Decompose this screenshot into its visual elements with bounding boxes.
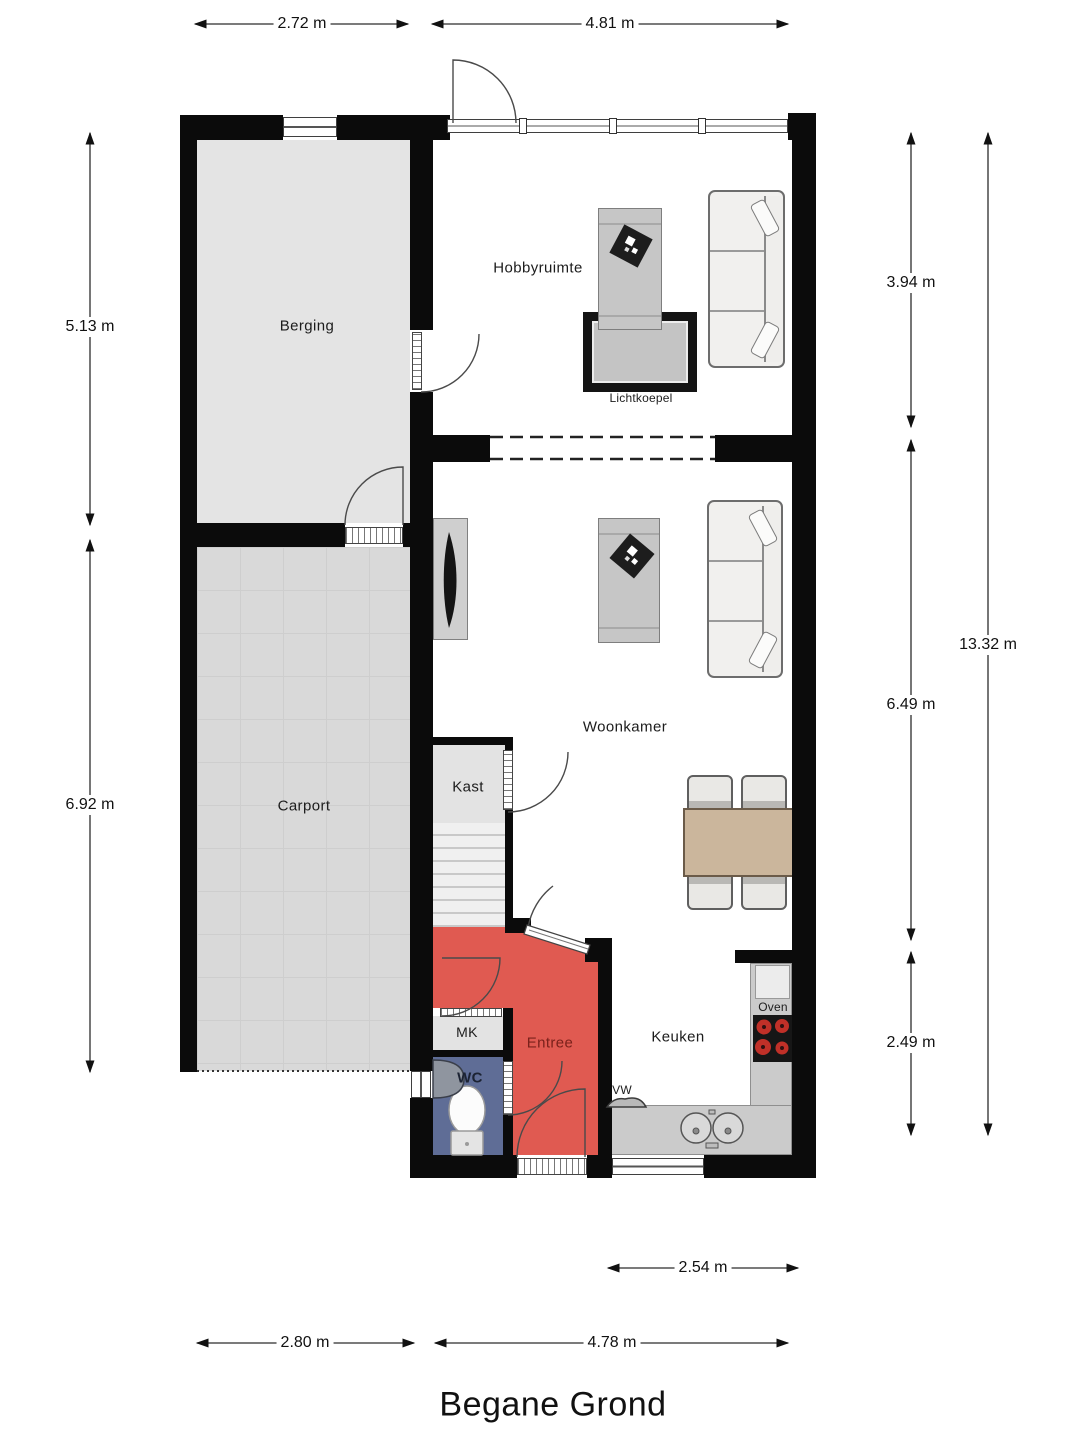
dim-top-left: 2.72 m (274, 14, 331, 34)
entree-living-door-leaf (524, 925, 590, 954)
dim-bottom-kitchen: 2.54 m (675, 1258, 732, 1278)
label-oven: Oven (758, 1000, 787, 1014)
room-label-woonkamer: Woonkamer (583, 719, 667, 736)
room-label-mk: MK (456, 1024, 478, 1040)
kitchen-sink (681, 1110, 743, 1148)
dishwasher-bump (607, 1098, 646, 1107)
dim-right-middle: 6.49 m (883, 695, 940, 715)
dim-bottom-right: 4.78 m (584, 1333, 641, 1353)
tv (444, 532, 457, 628)
door-swings (345, 60, 585, 1157)
toilet (449, 1086, 485, 1155)
decor-object (609, 533, 654, 578)
dim-top-right: 4.81 m (582, 14, 639, 34)
entree-living-door-arc (528, 886, 553, 928)
floor-plan: 2.72 m 4.81 m 5.13 m 6.92 m 3.94 m 6.49 … (0, 0, 1080, 1440)
room-label-entree: Entree (527, 1035, 574, 1052)
hobby-entry-door (453, 60, 516, 123)
page-title: Begane Grond (439, 1386, 666, 1425)
dim-left-lower: 6.92 m (62, 795, 119, 815)
open-passage (490, 437, 715, 459)
decor-object (609, 224, 652, 267)
berging-hobby-door-arc (421, 334, 479, 392)
room-label-lichtkoepel: Lichtkoepel (610, 391, 673, 405)
dimension-lines (90, 24, 988, 1343)
room-label-kast: Kast (452, 779, 484, 796)
front-door (517, 1089, 585, 1157)
room-label-carport: Carport (278, 798, 331, 815)
stairs-entree-door (442, 958, 500, 1016)
dim-left-upper: 5.13 m (62, 317, 119, 337)
stove-burners (755, 1019, 789, 1055)
kast-door-arc (508, 752, 568, 812)
room-label-keuken: Keuken (651, 1029, 704, 1046)
room-label-hobbyruimte: Hobbyruimte (493, 260, 582, 277)
berging-carport-door-arc (345, 467, 403, 525)
dim-right-lower: 2.49 m (883, 1033, 940, 1053)
label-vw: VW (612, 1083, 632, 1097)
room-label-berging: Berging (280, 318, 335, 335)
wc-door-arc (508, 1061, 562, 1115)
dim-right-total: 13.32 m (955, 635, 1021, 655)
room-label-wc: WC (457, 1070, 483, 1087)
dim-right-upper: 3.94 m (883, 273, 940, 293)
dim-bottom-left: 2.80 m (277, 1333, 334, 1353)
